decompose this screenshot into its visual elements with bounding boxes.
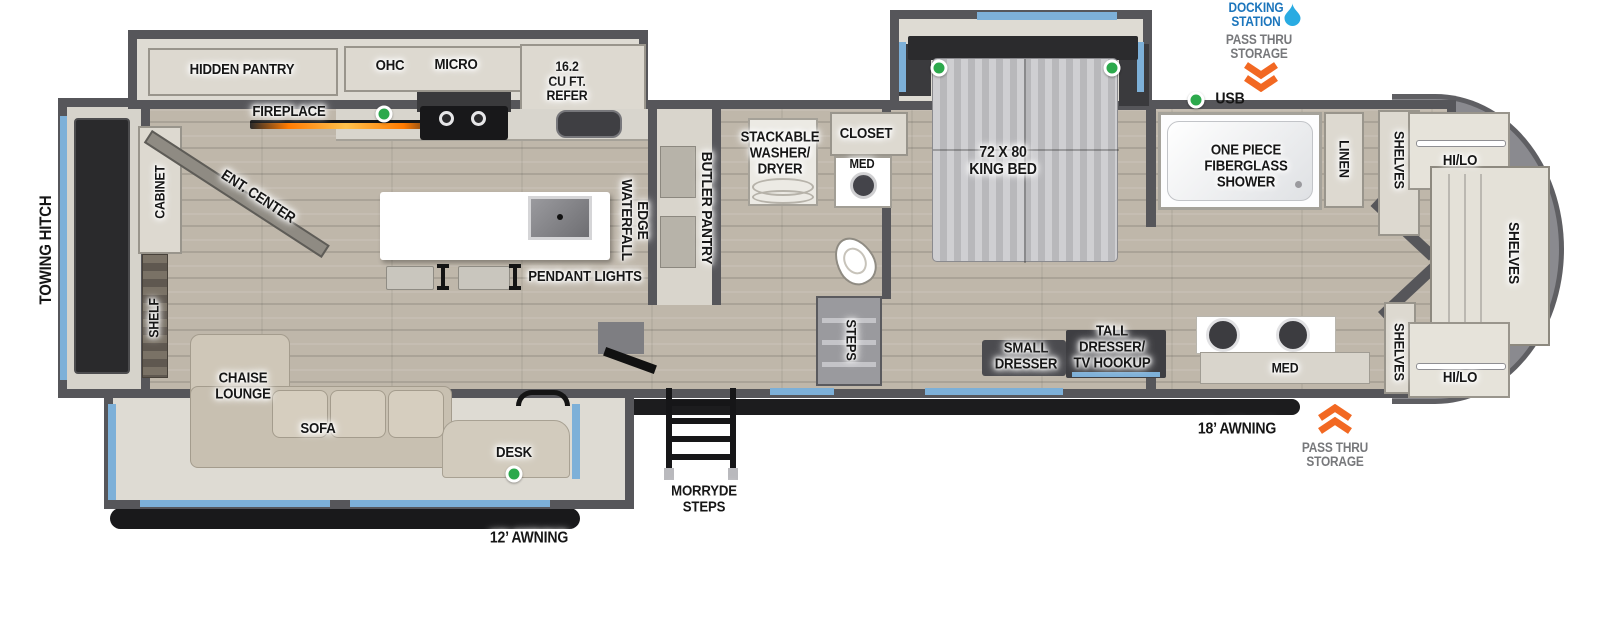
ladder-foot <box>664 468 674 480</box>
label-shelf: SHELF <box>147 298 162 338</box>
hi-lo-rod <box>1416 140 1506 147</box>
shelf-edge <box>1480 174 1482 340</box>
label-usb: USB <box>1215 92 1244 109</box>
pantry-shelf <box>660 216 696 268</box>
label-shower: ONE PIECE FIBERGLASS SHOWER <box>1204 142 1287 189</box>
toilet-bowl <box>838 243 871 278</box>
label-linen: LINEN <box>1337 140 1352 178</box>
label-tall-dresser: TALL DRESSER/ TV HOOKUP <box>1074 323 1151 370</box>
window-strip <box>350 500 550 507</box>
label-refer: 16.2 CU FT. REFER <box>547 59 588 103</box>
window-strip <box>899 42 906 92</box>
window-strip <box>770 388 834 395</box>
window-strip <box>1137 42 1144 92</box>
washer-arc <box>752 190 814 204</box>
burner-icon <box>471 111 486 126</box>
label-med-front: MED <box>1272 361 1299 376</box>
label-pass-thru-top: PASS THRU STORAGE <box>1226 33 1292 61</box>
sofa-cushion <box>388 390 444 438</box>
label-med-mid: MED <box>850 157 875 171</box>
morryde-steps-icon <box>660 388 742 480</box>
burner-icon <box>439 111 454 126</box>
label-waterfall-edge: WATERFALL EDGE <box>618 179 650 261</box>
label-docking-station: DOCKING STATION <box>1229 1 1284 29</box>
desk-chair-icon <box>516 390 570 406</box>
label-shelves-wardrobe: SHELVES <box>1505 222 1521 284</box>
label-small-dresser: SMALL DRESSER <box>995 340 1058 372</box>
vanity-sink <box>1206 318 1240 352</box>
med-sink <box>850 172 877 199</box>
green-led-dot <box>931 60 948 77</box>
step-tread <box>822 362 876 367</box>
label-king-bed: 72 X 80 KING BED <box>969 145 1036 179</box>
window-strip <box>60 116 67 380</box>
ladder-rung <box>670 436 732 442</box>
label-cabinet: CABINET <box>153 165 168 219</box>
ladder-foot <box>728 468 738 480</box>
bed-headboard <box>908 36 1138 60</box>
tv-hookup-strip <box>1072 372 1160 377</box>
kitchen-sink <box>556 110 622 138</box>
label-towing-hitch: TOWING HITCH <box>37 196 55 305</box>
vanity-sink <box>1276 318 1310 352</box>
pendant-light-icon <box>437 264 449 290</box>
label-hi-lo-bottom: HI/LO <box>1443 370 1477 386</box>
green-led-dot <box>1104 60 1121 77</box>
shelf-edge <box>1464 174 1466 340</box>
label-awning-12: 12’ AWNING <box>490 531 568 548</box>
cooktop <box>420 106 508 140</box>
label-steps: STEPS <box>844 319 859 360</box>
ladder-rung <box>670 418 732 424</box>
label-fireplace: FIREPLACE <box>252 104 325 120</box>
floorplan-canvas: HIDDEN PANTRY OHC MICRO 16.2 CU FT. REFE… <box>0 0 1600 626</box>
chevron-up-icon <box>1317 404 1353 434</box>
sofa-cushion <box>330 390 386 438</box>
ladder-rung <box>670 454 732 460</box>
green-led-dot <box>376 106 393 123</box>
pendant-light-icon <box>509 264 521 290</box>
ohc-micro-unit <box>344 46 522 92</box>
shower-drain <box>1295 181 1302 188</box>
water-drop-icon <box>1284 3 1301 26</box>
label-butler-pantry: BUTLER PANTRY <box>698 152 714 265</box>
window-strip <box>925 388 1063 395</box>
closet-unit-bottom <box>1408 322 1510 398</box>
ladder-rung <box>670 400 732 406</box>
wardrobe-shelves <box>1430 166 1550 346</box>
label-shelves-hall: SHELVES <box>1392 131 1407 189</box>
usb-led-dot <box>1188 92 1205 109</box>
label-hi-lo-top: HI/LO <box>1443 153 1477 169</box>
label-hidden-pantry: HIDDEN PANTRY <box>190 62 295 78</box>
window-strip <box>108 404 116 500</box>
label-morryde-steps: MORRYDE STEPS <box>671 483 737 515</box>
window-strip <box>572 404 580 479</box>
label-pendant-lights: PENDANT LIGHTS <box>528 269 641 285</box>
label-closet: CLOSET <box>840 126 892 142</box>
label-pass-thru-bottom: PASS THRU STORAGE <box>1302 441 1368 469</box>
shelf-edge <box>1448 174 1450 340</box>
chevron-down-icon <box>1243 62 1279 92</box>
bar-stool <box>386 266 434 290</box>
label-awning-18: 18’ AWNING <box>1198 422 1276 439</box>
window-strip <box>977 12 1117 20</box>
window-strip <box>140 500 330 507</box>
fireplace-glow <box>250 120 442 129</box>
bedroom-frontbath-wall-upper <box>1146 109 1156 227</box>
label-washer-dryer: STACKABLE WASHER/ DRYER <box>741 129 820 176</box>
label-ohc: OHC <box>376 58 405 74</box>
island-faucet <box>557 214 563 220</box>
pantry-shelf <box>660 146 696 198</box>
label-chaise-lounge: CHAISE LOUNGE <box>215 370 270 402</box>
bar-stool <box>458 266 510 290</box>
label-sofa: SOFA <box>300 421 335 437</box>
tv <box>74 118 130 374</box>
awning-bar-12 <box>110 508 580 529</box>
green-led-dot <box>506 466 523 483</box>
label-micro: MICRO <box>434 57 477 73</box>
label-shelves-lower: SHELVES <box>1392 323 1407 381</box>
label-desk: DESK <box>496 445 532 461</box>
